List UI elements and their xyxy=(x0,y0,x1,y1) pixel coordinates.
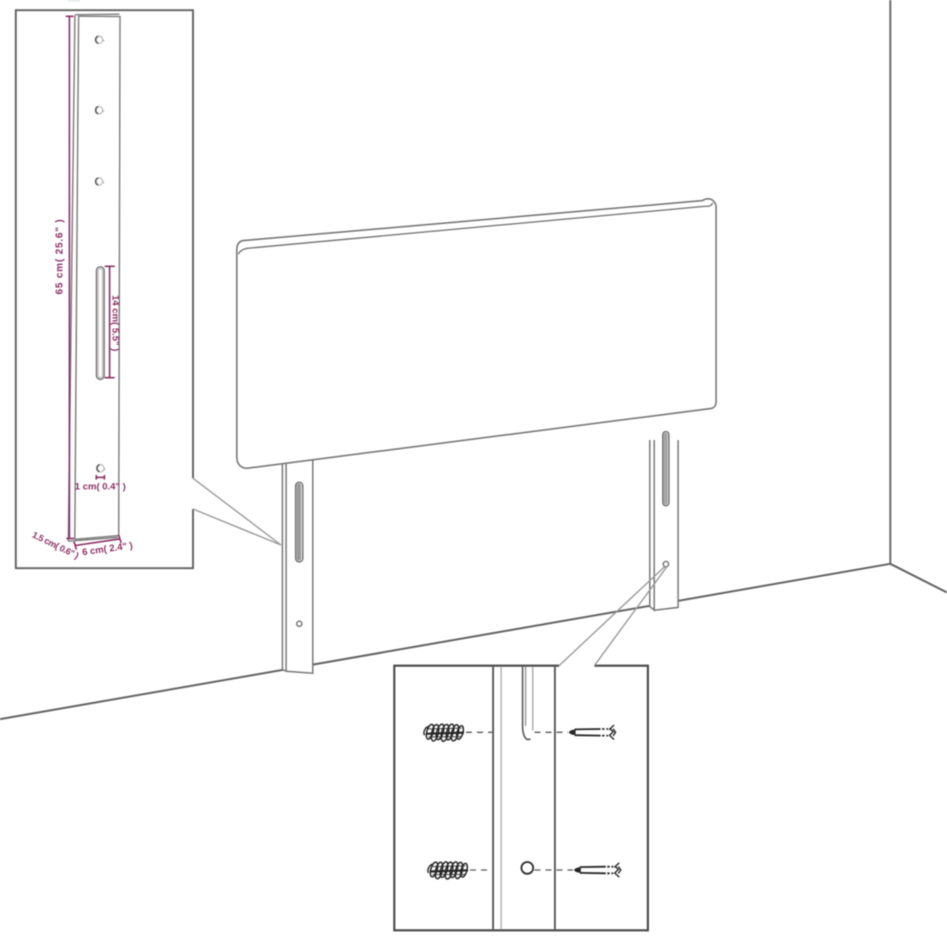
svg-text:65 cm( 25.6" ): 65 cm( 25.6" ) xyxy=(54,219,65,295)
svg-text:14 cm( 5.5" ): 14 cm( 5.5" ) xyxy=(110,295,121,351)
svg-text:1 cm( 0.4" ): 1 cm( 0.4" ) xyxy=(75,481,126,492)
